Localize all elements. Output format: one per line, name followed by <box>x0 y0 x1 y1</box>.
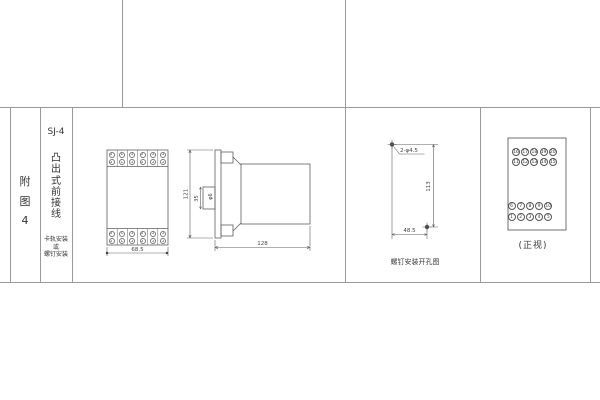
terminal-4: 4 <box>535 213 543 221</box>
drill-holes-label: 2-φ4.5 <box>400 148 418 154</box>
terminal-8: 8 <box>526 202 534 210</box>
clip-height-dimension: 35 <box>194 191 201 206</box>
screw-terminal-icon <box>129 238 135 244</box>
type-label: 凸出式前接线 <box>50 153 62 221</box>
terminal-row-bottom-1: 678910 <box>508 202 553 210</box>
technical-drawing-sheet: 附图4 SJ-4 凸出式前接线 卡轨安装 或 螺钉安装 68.5 121 35 … <box>0 0 600 400</box>
terminal-6: 6 <box>508 202 516 210</box>
mount-note-line: 卡轨安装 <box>40 236 72 244</box>
side-view-linework <box>187 150 310 251</box>
model-label: SJ-4 <box>40 127 72 137</box>
side-depth-dimension: 128 <box>247 241 278 247</box>
screw-terminal-icon <box>140 152 146 158</box>
screw-terminal-icon <box>109 238 115 244</box>
screw-terminal-icon <box>160 231 166 237</box>
terminal-9: 9 <box>535 202 543 210</box>
terminal-20: 20 <box>549 148 557 156</box>
front-terminal-row <box>109 231 167 237</box>
terminal-2: 2 <box>517 213 525 221</box>
screw-terminal-icon <box>119 152 125 158</box>
mount-note: 卡轨安装 或 螺钉安装 <box>40 236 72 259</box>
front-width-dimension: 68.5 <box>122 247 153 253</box>
terminal-1: 1 <box>508 213 516 221</box>
screw-terminal-icon <box>109 152 115 158</box>
terminal-19: 19 <box>540 148 548 156</box>
front-terminal-row <box>109 152 167 158</box>
drill-width-dimension: 48.5 <box>394 228 425 234</box>
terminal-7: 7 <box>517 202 525 210</box>
clip-hole-label: φ6 <box>208 189 215 204</box>
drawing-linework <box>0 0 600 400</box>
screw-terminal-icon <box>140 238 146 244</box>
mount-note-line: 或 <box>40 244 72 252</box>
terminal-13: 13 <box>530 158 538 166</box>
side-height-dimension: 121 <box>183 184 191 205</box>
terminal-17: 17 <box>521 148 529 156</box>
terminal-view-caption: (正视) <box>501 238 565 251</box>
terminal-16: 16 <box>512 148 520 156</box>
screw-terminal-icon <box>119 159 125 165</box>
figure-label: 附图4 <box>17 172 33 231</box>
screw-terminal-icon <box>150 231 156 237</box>
screw-terminal-icon <box>150 152 156 158</box>
screw-terminal-icon <box>119 231 125 237</box>
screw-terminal-icon <box>150 159 156 165</box>
mount-note-line: 螺钉安装 <box>40 251 72 259</box>
screw-terminal-icon <box>129 152 135 158</box>
terminal-row-top-2: 1112131415 <box>512 158 557 166</box>
terminal-11: 11 <box>512 158 520 166</box>
screw-terminal-icon <box>119 238 125 244</box>
screw-terminal-icon <box>140 159 146 165</box>
terminal-5: 5 <box>544 213 552 221</box>
front-terminal-row <box>109 238 167 244</box>
terminal-18: 18 <box>530 148 538 156</box>
screw-terminal-icon <box>129 231 135 237</box>
screw-terminal-icon <box>140 231 146 237</box>
screw-terminal-icon <box>160 238 166 244</box>
terminal-row-top-1: 1617181920 <box>512 148 557 156</box>
terminal-3: 3 <box>526 213 534 221</box>
front-terminal-row <box>109 159 167 165</box>
screw-terminal-icon <box>109 231 115 237</box>
terminal-row-bottom-2: 12345 <box>508 213 553 221</box>
terminal-10: 10 <box>544 202 552 210</box>
screw-terminal-icon <box>109 159 115 165</box>
drill-height-dimension: 113 <box>426 176 433 197</box>
screw-terminal-icon <box>160 152 166 158</box>
screw-terminal-icon <box>150 238 156 244</box>
screw-terminal-icon <box>129 159 135 165</box>
terminal-12: 12 <box>521 158 529 166</box>
terminal-15: 15 <box>549 158 557 166</box>
terminal-14: 14 <box>540 158 548 166</box>
drill-view-caption: 螺钉安装开孔图 <box>377 257 453 267</box>
screw-terminal-icon <box>160 159 166 165</box>
